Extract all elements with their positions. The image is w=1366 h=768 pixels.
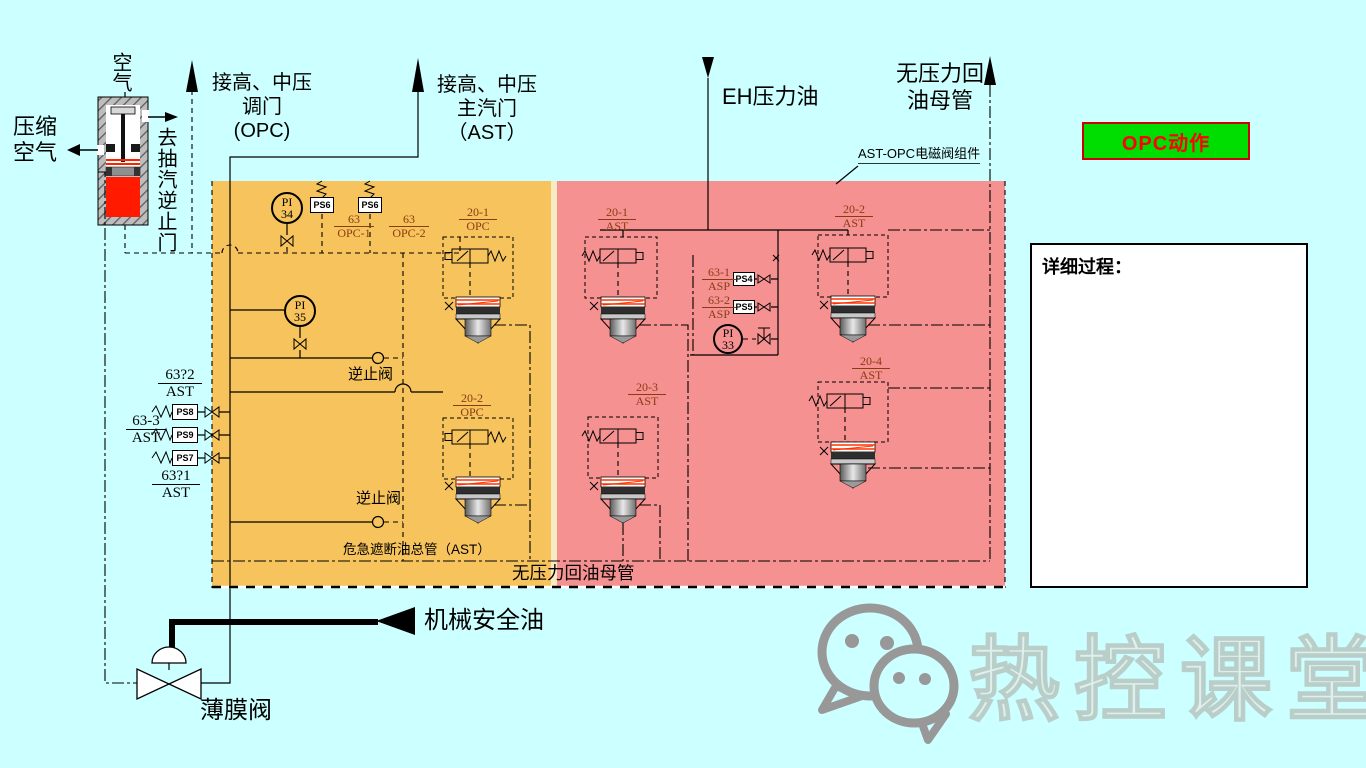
instrument-valves <box>205 236 770 463</box>
solenoid-20-2-opc <box>445 430 506 444</box>
ps5-valve-icon <box>758 303 770 311</box>
tag-20-3-ast: 20-3AST <box>628 381 666 408</box>
opc-up-arrow <box>186 60 198 92</box>
cartridge-valve-20-1-opc <box>445 297 500 343</box>
opc-action-button[interactable]: OPC动作 <box>1082 122 1250 160</box>
tag-bottom: OPC <box>460 405 483 419</box>
cartridge-valves <box>445 296 875 523</box>
tag-bottom: ASP <box>708 307 730 321</box>
membrane-valve-label: 薄膜阀 <box>200 697 272 725</box>
cartridge-valve-20-1-ast <box>590 297 645 343</box>
tag-bottom: OPC-2 <box>392 226 425 240</box>
tag-top: 20-1 <box>459 206 497 220</box>
pi33-gauge: PI 33 <box>713 324 743 354</box>
pi33-isolation-valve-icon <box>758 328 770 344</box>
solenoid-20-1-opc <box>445 249 506 263</box>
tag-bottom: OPC-1 <box>337 226 370 240</box>
tag-63-1-ast: 63?1AST <box>152 468 200 501</box>
solenoid-20-3-ast <box>582 429 643 443</box>
membrane-valve-assembly <box>137 607 415 699</box>
ast-line-label: 接高、中压 主汽门 （AST） <box>427 73 547 145</box>
opc-line-label-2: 调门 <box>202 95 322 119</box>
return-main-line2: 油母管 <box>884 87 996 114</box>
eh-oil-down-arrow <box>702 57 714 78</box>
ast-header-label: 危急遮断油总管（AST） <box>343 542 491 558</box>
tag-top: 20-3 <box>628 381 666 395</box>
mech-safety-oil-line <box>172 622 378 648</box>
tag-20-2-opc: 20-2OPC <box>453 392 491 419</box>
wechat-watermark-logo <box>822 608 954 740</box>
opc-line-label-3: (OPC) <box>202 119 322 143</box>
tag-bottom: AST <box>636 394 659 408</box>
eh-oil-label: EH压力油 <box>722 84 842 109</box>
assembly-label: AST-OPC电磁阀组件 <box>858 147 980 164</box>
ps9-switch: PS9 <box>172 427 198 443</box>
tag-top: 20-4 <box>852 355 890 369</box>
cartridge-valve-20-2-ast <box>820 296 875 342</box>
compressed-air-arrow <box>67 144 98 156</box>
tag-top: 63 <box>389 213 429 227</box>
tag-bottom: AST <box>132 430 160 446</box>
check-valve-top-label: 逆止阀 <box>348 366 393 383</box>
cartridge-valve-20-3-ast <box>590 477 645 523</box>
tag-top: 63-1 <box>702 266 736 280</box>
cartridge-valve-20-2-opc <box>445 477 500 523</box>
pipes-solid <box>169 78 858 683</box>
air-label: 空气 <box>105 52 131 92</box>
pi34-drain-valve-icon <box>281 236 293 246</box>
check-valve-bottom-label: 逆止阀 <box>356 490 401 507</box>
cartridge-valve-20-4-ast <box>820 442 875 488</box>
opc-line-label-1: 接高、中压 <box>202 71 322 95</box>
tag-20-4-ast: 20-4AST <box>852 355 890 382</box>
ast-line-label-1: 接高、中压 <box>427 73 547 97</box>
ps5-switch: PS5 <box>733 300 755 314</box>
tag-top: 63?2 <box>158 367 202 384</box>
pi35-gauge: PI 35 <box>284 295 316 327</box>
mech-safety-oil-arrow <box>376 607 415 635</box>
tag-top: 20-2 <box>453 392 491 406</box>
solenoid-20-1-ast <box>582 249 643 263</box>
mech-safety-oil-label: 机械安全油 <box>424 607 544 635</box>
to-extraction-valve-label: 去抽汽逆止门 <box>153 127 176 267</box>
check-valve-top-icon <box>373 353 384 364</box>
tag-bottom: AST <box>843 216 866 230</box>
pi34-gauge: PI 34 <box>271 192 303 224</box>
pi34-number: 34 <box>281 208 293 220</box>
ast-up-arrow <box>412 58 424 92</box>
tag-top: 63-2 <box>702 294 736 308</box>
tag-63-opc1: 63OPC-1 <box>334 213 374 240</box>
pipes-dashed <box>125 90 1005 588</box>
tag-63-2-ast: 63?2AST <box>158 367 202 400</box>
ast-line-label-2: 主汽门 <box>427 97 547 121</box>
tag-top: 63-3 <box>126 413 166 430</box>
tag-bottom: AST <box>166 384 194 400</box>
tag-bottom: AST <box>860 368 883 382</box>
tag-20-1-ast: 20-1AST <box>598 206 636 233</box>
tag-bottom: OPC <box>466 219 489 233</box>
ps9-valve-icon <box>205 430 219 440</box>
diaphragm-dome-icon <box>152 647 186 663</box>
opc-line-label: 接高、中压 调门 (OPC) <box>202 71 322 143</box>
return-main-label: 无压力回 油母管 <box>884 60 996 114</box>
valve-red-piston <box>106 177 140 217</box>
pi33-number: 33 <box>722 339 734 351</box>
pipes-dashdot <box>98 85 990 683</box>
ps6-switch-1: PS6 <box>310 197 334 213</box>
solenoid-20-2-ast <box>812 248 873 262</box>
compressed-air-label: 压缩 空气 <box>13 114 65 166</box>
ps4-valve-icon <box>758 275 770 283</box>
tag-20-2-ast: 20-2AST <box>835 203 873 230</box>
compressed-air-line2: 空气 <box>13 140 65 166</box>
solenoid-group-boxes <box>443 235 888 479</box>
compressed-air-line1: 压缩 <box>13 114 65 140</box>
pi35-drain-valve-icon <box>294 339 306 349</box>
ast-line-label-3: （AST） <box>427 121 547 145</box>
watermark-text: 热控课堂 <box>968 630 1366 732</box>
check-valve-bottom-icon <box>373 517 384 528</box>
detail-panel: 详细过程： <box>1030 243 1308 588</box>
detail-panel-title: 详细过程： <box>1042 253 1296 279</box>
pi35-number: 35 <box>294 311 306 323</box>
air-outlet-arrow <box>148 112 178 122</box>
ps8-switch: PS8 <box>172 404 198 420</box>
diagram-canvas: 热控课堂 <box>0 0 1366 768</box>
ps6-switch-2: PS6 <box>358 197 382 213</box>
tag-top: 63 <box>334 213 374 227</box>
tag-63-1-asp: 63-1ASP <box>702 266 736 293</box>
solenoid-symbols <box>445 248 873 444</box>
tag-top: 20-1 <box>598 206 636 220</box>
return-header-label: 无压力回油母管 <box>512 563 635 583</box>
tag-63-2-asp: 63-2ASP <box>702 294 736 321</box>
ps7-switch: PS7 <box>172 450 198 466</box>
tag-bottom: AST <box>606 219 629 233</box>
air-pilot-valve <box>97 92 149 225</box>
tag-20-1-opc: 20-1OPC <box>459 206 497 233</box>
tag-63-opc2: 63OPC-2 <box>389 213 429 240</box>
return-main-line1: 无压力回 <box>884 60 996 87</box>
tag-63-3-ast: 63-3AST <box>126 413 166 446</box>
tag-top: 63?1 <box>152 468 200 485</box>
ps4-switch: PS4 <box>733 272 755 286</box>
tag-top: 20-2 <box>835 203 873 217</box>
tag-bottom: ASP <box>708 279 730 293</box>
tag-bottom: AST <box>162 485 190 501</box>
